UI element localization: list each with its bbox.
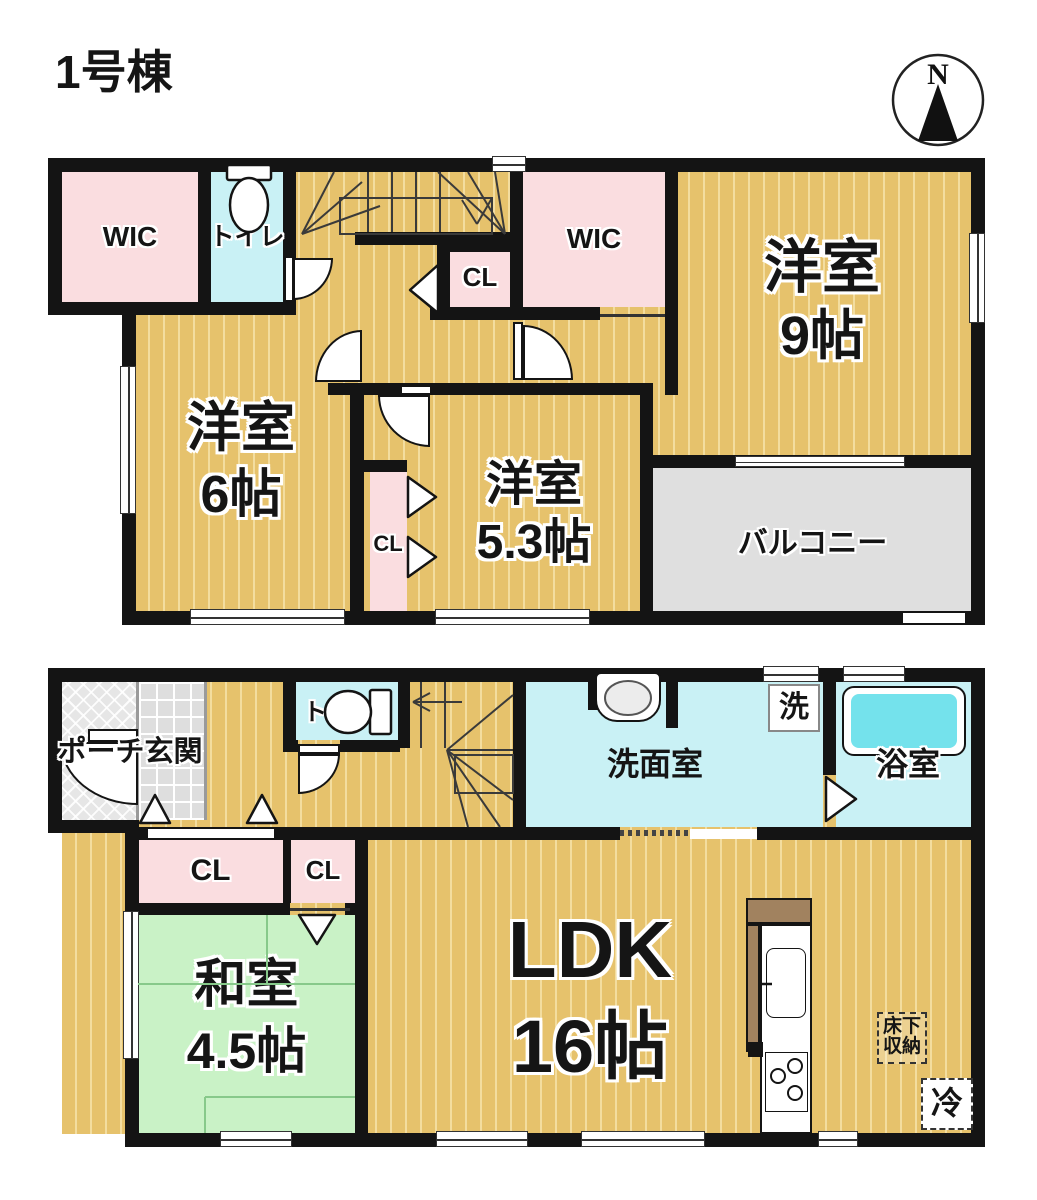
staircase-2f	[302, 172, 505, 234]
north-compass-icon: N	[893, 55, 983, 145]
entrance-step-triangle-a	[140, 795, 170, 823]
overlay-graphics: N	[0, 0, 1037, 1200]
staircase-1f	[413, 682, 513, 827]
folding-door-hall-closet	[410, 265, 438, 313]
sink-bowl-icon	[605, 681, 651, 715]
stove-burners-icon	[771, 1059, 802, 1100]
folding-door-triangles	[140, 265, 856, 944]
entrance-step-triangle-b	[247, 795, 277, 823]
toilet-fixture-2f	[227, 165, 271, 232]
folding-door-closet53-a	[408, 477, 436, 517]
toilet-fixture-1f	[325, 690, 391, 734]
folding-door-closet53-b	[408, 537, 436, 577]
floor-plan: 1号棟 WIC トイレ CL WIC 洋室 9帖 洋室 6帖 洋	[0, 0, 1037, 1200]
folding-door-closet2	[299, 915, 335, 944]
tatami-grid	[138, 915, 355, 1133]
compass-north-label: N	[927, 58, 949, 91]
folding-door-bathroom	[826, 777, 856, 821]
